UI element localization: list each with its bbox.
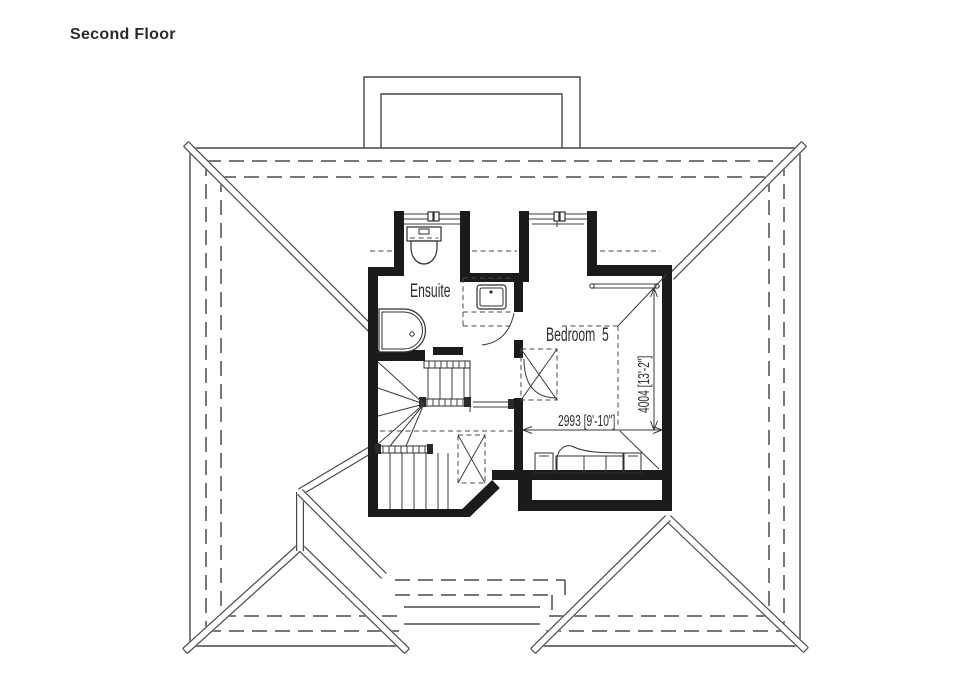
hip-ridge-bottom-right: [666, 516, 809, 653]
hip-ridge-bottom-left: [183, 545, 303, 654]
floor-plan-page: Second Floor Ensuite Bedroom 5 2993 [9'-…: [0, 0, 969, 680]
bedroom-label: Bedroom 5: [546, 326, 609, 346]
hip-ridge-top-right: [669, 142, 807, 280]
floor-plan-drawing: Second Floor Ensuite Bedroom 5 2993 [9'-…: [0, 0, 969, 680]
shower-tray: [379, 309, 426, 352]
hip-ridge-top-left: [184, 142, 375, 333]
chimney: [364, 77, 580, 148]
dimension-width-label: 2993 [9'-10"]: [558, 412, 615, 430]
ensuite-label: Ensuite: [410, 282, 451, 302]
dimension-depth-label: 4004 [13'-2"]: [635, 356, 653, 413]
page-title: Second Floor: [70, 26, 176, 43]
hip-ridge-right-gable-left: [531, 516, 671, 654]
rear-recess-dormer: [395, 580, 565, 624]
hip-ridge-left-gable-right: [298, 545, 410, 654]
